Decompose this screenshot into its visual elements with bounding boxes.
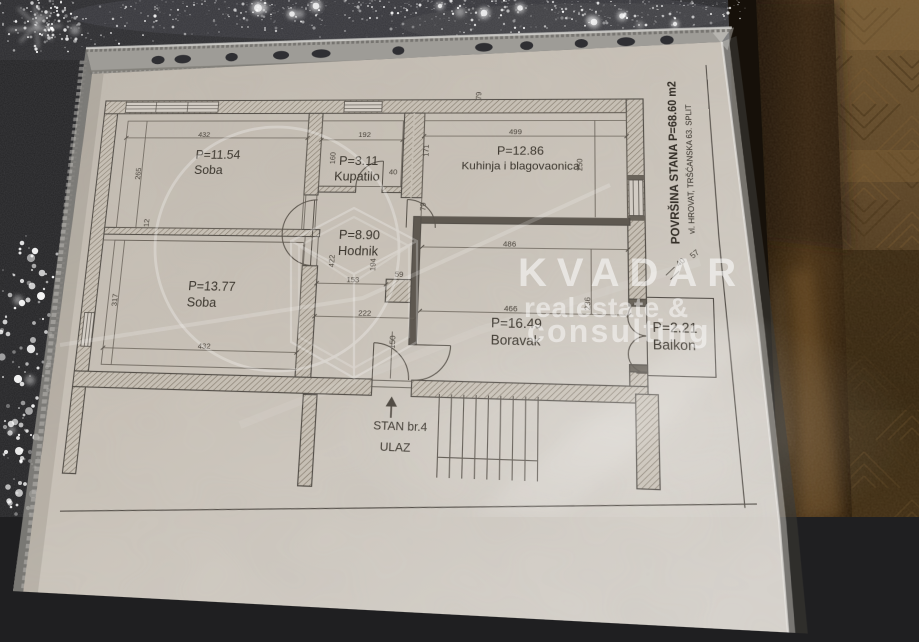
svg-text:KVADAR: KVADAR [518,251,746,295]
svg-text:consulting: consulting [527,313,711,349]
